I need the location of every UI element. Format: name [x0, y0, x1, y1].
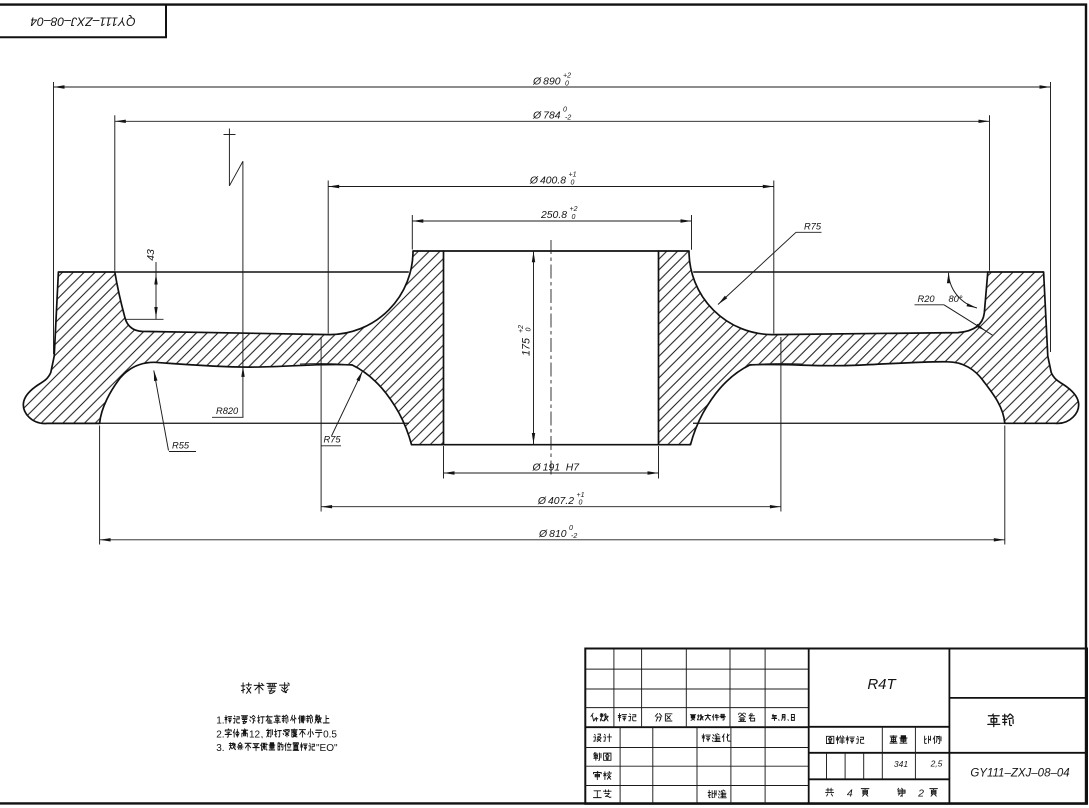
svg-text:R75: R75 [804, 221, 822, 231]
svg-text:0.5: 0.5 [323, 729, 337, 740]
svg-text:QY111–ZXJ–08–04: QY111–ZXJ–08–04 [30, 15, 135, 29]
svg-text:0: 0 [563, 107, 567, 114]
svg-text:80°: 80° [949, 294, 963, 304]
svg-text:2.: 2. [216, 729, 224, 740]
svg-text:R20: R20 [918, 294, 936, 304]
svg-text:+2: +2 [570, 206, 578, 213]
svg-text:+2: +2 [563, 73, 571, 80]
svg-text:-2: -2 [565, 114, 571, 121]
svg-text:12: 12 [249, 729, 261, 740]
svg-text:Ø 810: Ø 810 [538, 529, 567, 540]
svg-text:2,5: 2,5 [930, 759, 943, 769]
svg-text:Ø 407.2: Ø 407.2 [537, 496, 574, 507]
svg-text:R4T: R4T [867, 676, 897, 693]
svg-text:0: 0 [569, 525, 573, 532]
svg-text:4: 4 [847, 788, 853, 800]
svg-text:Ø 400.8: Ø 400.8 [529, 176, 566, 187]
svg-text:+1: +1 [577, 492, 585, 499]
svg-text:Ø 890: Ø 890 [532, 77, 561, 88]
svg-text:+2: +2 [518, 325, 525, 333]
svg-text:1.: 1. [216, 716, 224, 727]
svg-text:0: 0 [572, 214, 576, 221]
svg-text:0: 0 [565, 80, 569, 87]
svg-text:-2: -2 [571, 533, 577, 540]
svg-text:0: 0 [579, 500, 583, 507]
svg-text:3.: 3. [216, 743, 224, 754]
svg-text:0: 0 [525, 328, 532, 332]
svg-text:0: 0 [571, 179, 575, 186]
svg-text:"EO": "EO" [316, 743, 338, 754]
svg-text:GY111–ZXJ–08–04: GY111–ZXJ–08–04 [970, 768, 1069, 780]
svg-text:Ø 191 H7: Ø 191 H7 [532, 463, 581, 474]
svg-text:175: 175 [521, 337, 533, 356]
svg-text:250.8: 250.8 [540, 210, 567, 221]
svg-text:R55: R55 [172, 441, 190, 451]
svg-text:43: 43 [146, 249, 157, 261]
svg-text:2: 2 [917, 788, 924, 800]
svg-text:R75: R75 [324, 435, 342, 445]
svg-text:+1: +1 [569, 172, 577, 179]
svg-text:R820: R820 [216, 406, 239, 416]
svg-text:341: 341 [894, 759, 908, 769]
svg-text:Ø 784: Ø 784 [532, 111, 561, 122]
